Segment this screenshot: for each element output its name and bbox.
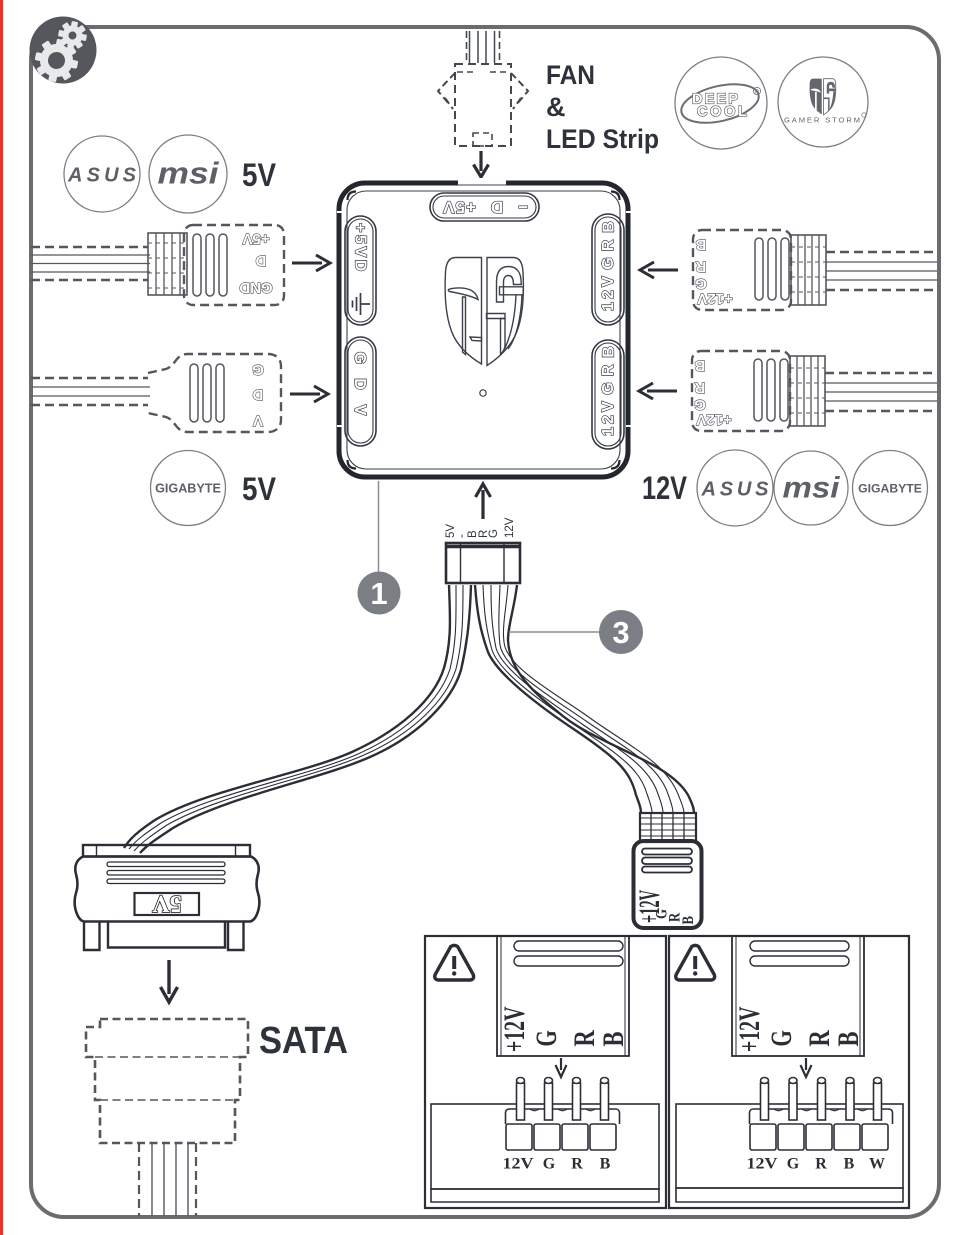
svg-text:B: B [601,221,618,233]
svg-text:SATA: SATA [259,1020,348,1062]
svg-text:D: D [252,386,263,403]
svg-text:12V: 12V [503,1156,534,1173]
svg-text:2: 2 [600,415,617,424]
svg-text:R: R [815,1156,827,1173]
svg-text:2: 2 [600,290,617,299]
svg-text:msi: msi [783,472,841,505]
svg-text:V: V [600,276,617,287]
svg-text:G: G [600,257,617,269]
svg-text:G: G [529,1030,563,1046]
svg-text:5V: 5V [242,471,277,507]
svg-text:D: D [255,252,266,269]
svg-text:1: 1 [370,576,387,611]
svg-text:R: R [694,379,705,396]
svg-text:V: V [600,401,617,412]
svg-text:G: G [600,382,617,394]
svg-text:GND: GND [239,279,273,296]
svg-text:R: R [600,364,617,376]
svg-text:B: B [844,1156,855,1173]
svg-text:R: R [600,239,617,251]
svg-text:5V: 5V [152,890,182,916]
svg-text:GIGABYTE: GIGABYTE [155,482,221,496]
svg-text:G: G [488,529,500,538]
svg-text:FAN: FAN [546,60,595,90]
svg-text:G: G [543,1156,556,1173]
svg-text:12V: 12V [747,1156,778,1173]
svg-text:B: B [680,916,698,925]
svg-text:B: B [596,1031,630,1046]
svg-text:+12V: +12V [498,1006,531,1052]
svg-text:G: G [252,361,264,378]
svg-text:+12V: +12V [697,290,732,307]
svg-text:GAMER STORM: GAMER STORM [784,116,860,125]
svg-text:+12V: +12V [696,411,731,428]
svg-text:B: B [600,1156,611,1173]
svg-text:+12V: +12V [733,1006,766,1052]
svg-text:R: R [755,90,759,96]
svg-text:B: B [601,346,618,358]
svg-text:B: B [831,1031,865,1046]
svg-text:12V: 12V [504,517,516,538]
svg-text:B: B [694,357,705,374]
svg-text:+5V: +5V [242,230,269,247]
svg-text:+5VD: +5VD [352,223,369,274]
svg-text:D: D [491,198,503,217]
svg-text:+5V: +5V [442,198,476,217]
svg-text:G: G [695,275,707,292]
svg-text:D: D [351,378,368,390]
svg-text:V: V [253,412,263,429]
svg-text:G: G [694,396,706,413]
svg-text:W: W [869,1156,885,1173]
svg-text:G: G [764,1030,798,1046]
svg-text:1: 1 [600,302,617,311]
svg-text:V: V [351,405,368,416]
svg-text:msi: msi [158,156,221,191]
svg-text:G: G [351,352,368,364]
svg-text:3: 3 [612,615,629,650]
svg-text:B: B [695,236,706,253]
svg-text:LED Strip: LED Strip [546,124,659,154]
svg-text:1: 1 [600,427,617,436]
svg-text:5V: 5V [242,157,277,193]
svg-text:&: & [546,92,566,122]
svg-text:−: − [518,198,528,217]
svg-text:G: G [787,1156,800,1173]
svg-text:GIGABYTE: GIGABYTE [858,482,922,496]
svg-text:R: R [695,258,706,275]
svg-text:12V: 12V [642,470,688,506]
svg-text:R: R [571,1156,583,1173]
